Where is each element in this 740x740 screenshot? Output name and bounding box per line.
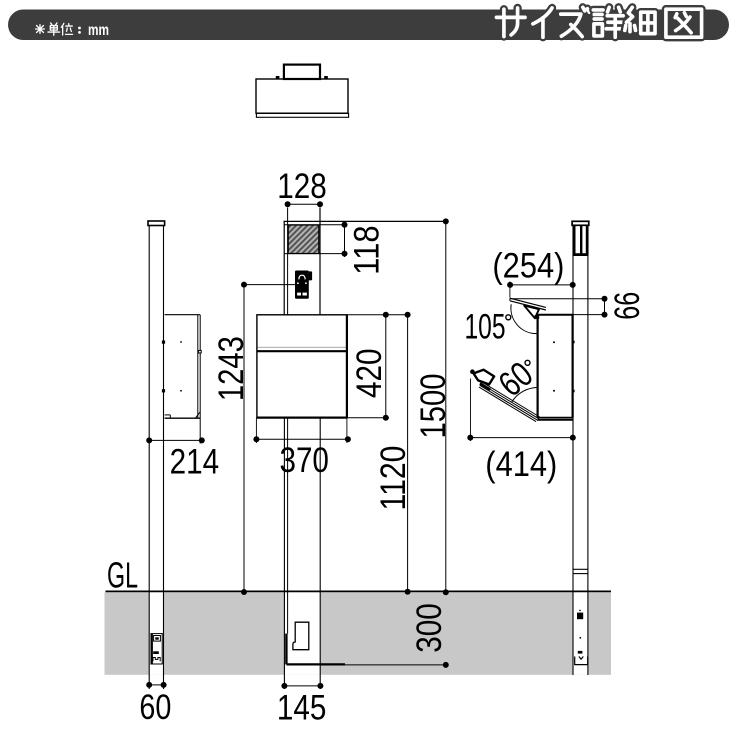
svg-text:145: 145 [277,687,327,727]
svg-text:mm: mm [88,22,109,39]
svg-text:128: 128 [277,166,327,206]
svg-text:370: 370 [279,440,329,480]
svg-text:60: 60 [139,687,171,727]
svg-text:214: 214 [170,442,220,482]
svg-text:1243: 1243 [211,336,251,401]
svg-text:105: 105 [465,306,506,346]
svg-text:1500: 1500 [413,374,453,439]
svg-text:420: 420 [349,349,389,399]
svg-text:1120: 1120 [373,446,413,511]
svg-text:118: 118 [347,225,387,275]
svg-text:300: 300 [409,603,449,653]
svg-text:(414): (414) [485,444,557,484]
svg-text:66: 66 [607,292,647,320]
svg-text:(254): (254) [492,245,564,285]
svg-text:GL: GL [107,555,138,596]
